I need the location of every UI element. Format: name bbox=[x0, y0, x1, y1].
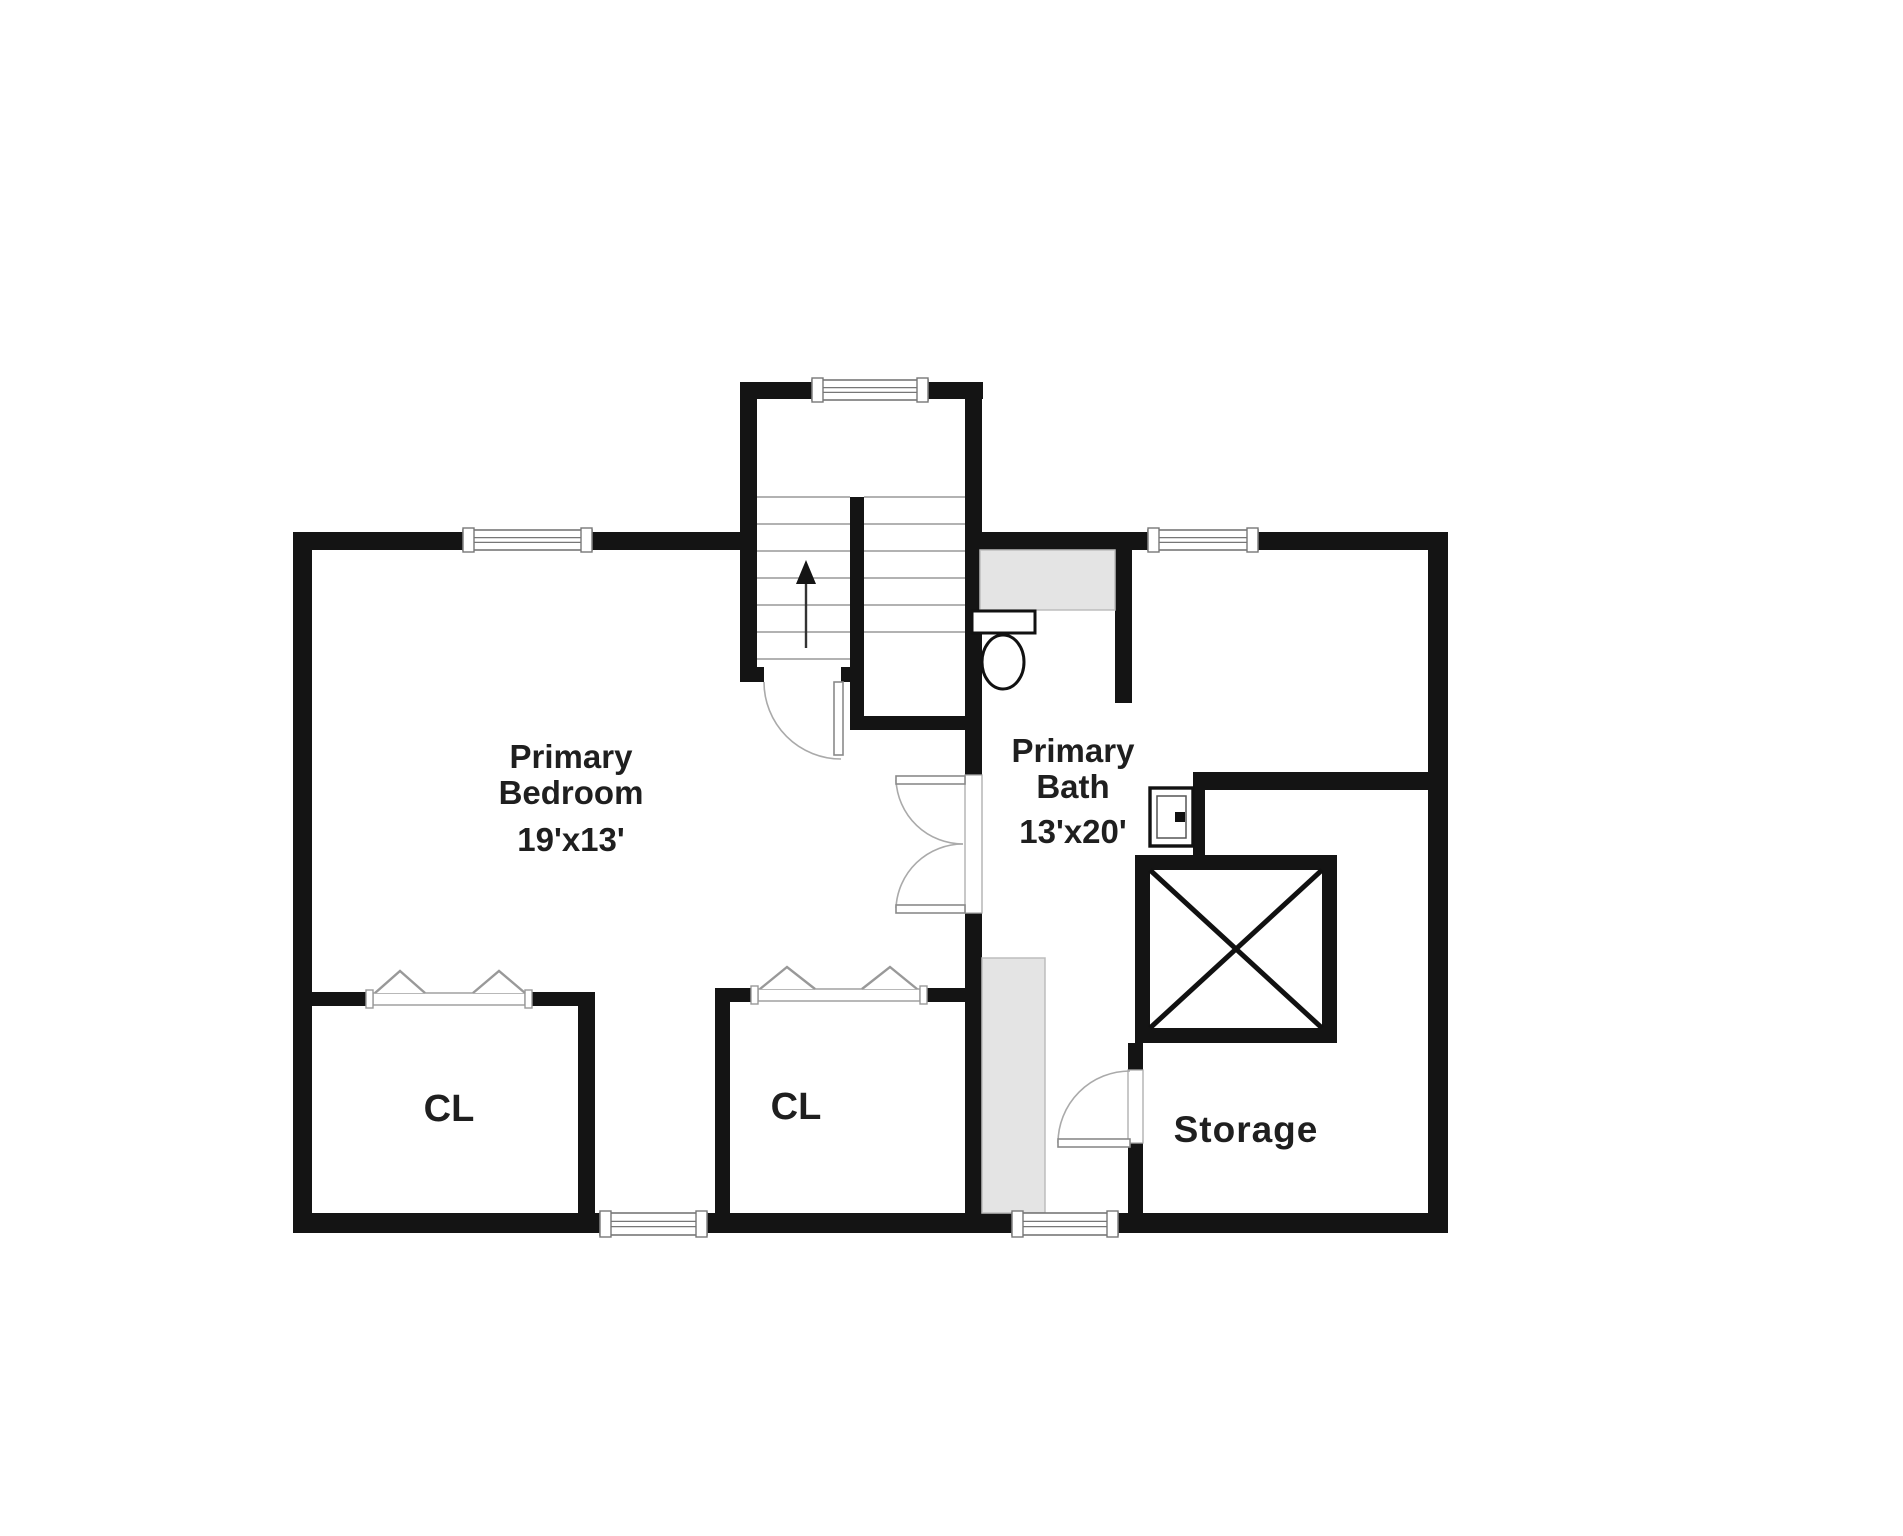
bottom-window-left-cap bbox=[696, 1211, 707, 1237]
storage-label: Storage bbox=[1174, 1109, 1319, 1150]
closet-left-label: CL bbox=[424, 1088, 475, 1130]
storage-wall-lower bbox=[1128, 1143, 1143, 1215]
stair-door-stub-left bbox=[750, 667, 764, 682]
bath-window-cap bbox=[1148, 528, 1159, 552]
bottom-window-right-cap bbox=[1107, 1211, 1118, 1237]
storage-door-frame bbox=[1128, 1070, 1143, 1143]
bottom-window-left bbox=[600, 1211, 707, 1237]
closet-left-opening-band bbox=[373, 993, 525, 1005]
stairwell-window-frame bbox=[812, 380, 928, 400]
closet-left-opening-cap bbox=[525, 990, 532, 1008]
east-wall bbox=[1428, 532, 1448, 1233]
sink-wall bbox=[1193, 790, 1205, 858]
closet-center-top-right bbox=[926, 988, 965, 1002]
bath-double-door-leaf bbox=[896, 905, 965, 913]
bottom-window-left-cap bbox=[600, 1211, 611, 1237]
primary-bedroom-label: PrimaryBedroom19'x13' bbox=[499, 738, 644, 858]
shower-wall-right bbox=[1322, 855, 1337, 1043]
bath-window-frame bbox=[1148, 530, 1258, 550]
top-wall-bath-left bbox=[982, 532, 1148, 550]
bottom-window-right bbox=[1012, 1211, 1118, 1237]
floor-plan: PrimaryBedroom19'x13'PrimaryBath13'x20'C… bbox=[0, 0, 1903, 1536]
closet-center-left-wall bbox=[715, 988, 730, 1215]
stair-door-stub-right bbox=[841, 667, 855, 682]
bottom-wall-center bbox=[707, 1213, 1012, 1233]
bath-vanity-counter bbox=[982, 958, 1045, 1213]
top-wall-bedroom-left bbox=[293, 532, 463, 550]
storage-door-leaf bbox=[1058, 1139, 1130, 1147]
closet-left-top-left bbox=[312, 992, 367, 1006]
closet-left-right-wall bbox=[578, 992, 595, 1215]
stair-divider-wall bbox=[850, 497, 864, 730]
stairwell-top-wall-left bbox=[740, 382, 812, 399]
closet-left-opening-cap bbox=[366, 990, 373, 1008]
bottom-wall-right bbox=[1118, 1213, 1448, 1233]
closet-center-opening-band bbox=[758, 989, 920, 1001]
shower-wall-top bbox=[1135, 855, 1337, 870]
stair-door-leaf bbox=[834, 682, 843, 755]
floor-plan-svg: PrimaryBedroom19'x13'PrimaryBath13'x20'C… bbox=[0, 0, 1903, 1536]
hall-north-wall bbox=[850, 716, 982, 730]
bedroom-window-frame bbox=[463, 530, 592, 550]
bottom-window-right-frame bbox=[1012, 1213, 1118, 1235]
toilet-tank bbox=[972, 611, 1035, 633]
bath-east-wall bbox=[1193, 772, 1448, 790]
toilet-nook-wall bbox=[1115, 550, 1132, 703]
plan-background bbox=[0, 0, 1903, 1536]
stairwell-window bbox=[812, 378, 928, 402]
shower-wall-bottom bbox=[1135, 1028, 1337, 1043]
stairwell-window-cap bbox=[812, 378, 823, 402]
bath-counter-top bbox=[980, 550, 1115, 610]
closet-center-label: CL bbox=[771, 1086, 822, 1128]
bath-window-cap bbox=[1247, 528, 1258, 552]
bedroom-window-cap bbox=[581, 528, 592, 552]
closet-center-opening-cap bbox=[751, 986, 758, 1004]
storage-wall-stub bbox=[1128, 1043, 1143, 1070]
bottom-window-left-frame bbox=[600, 1213, 707, 1235]
stairwell-window-cap bbox=[917, 378, 928, 402]
closet-left-top-right bbox=[531, 992, 595, 1006]
bath-double-door-frame bbox=[965, 775, 982, 913]
top-wall-bedroom-right bbox=[592, 532, 740, 550]
shower-wall-left bbox=[1135, 855, 1150, 1043]
toilet-bowl bbox=[982, 635, 1024, 689]
bottom-window-right-cap bbox=[1012, 1211, 1023, 1237]
bottom-wall-left bbox=[293, 1213, 600, 1233]
bath-double-door-leaf bbox=[896, 776, 965, 784]
bedroom-bath-wall-lower bbox=[965, 913, 982, 1215]
bedroom-window-cap bbox=[463, 528, 474, 552]
bath-window bbox=[1148, 528, 1258, 552]
closet-center-top-left bbox=[715, 988, 752, 1002]
bedroom-window bbox=[463, 528, 592, 552]
stairwell-left-wall bbox=[740, 382, 757, 682]
top-wall-bath-right bbox=[1258, 532, 1448, 550]
closet-center-opening-cap bbox=[920, 986, 927, 1004]
west-wall bbox=[293, 532, 312, 1233]
sink-faucet bbox=[1175, 812, 1185, 822]
sink-icon bbox=[1150, 788, 1193, 846]
